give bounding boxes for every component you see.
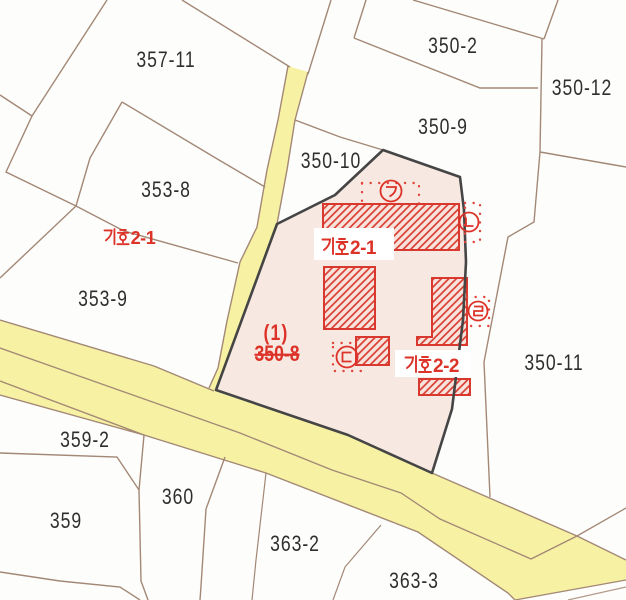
svg-text:357-11: 357-11 xyxy=(136,48,195,72)
svg-text:360: 360 xyxy=(162,485,194,509)
svg-text:359: 359 xyxy=(50,509,82,533)
svg-text:350-12: 350-12 xyxy=(552,76,613,100)
svg-text:353-9: 353-9 xyxy=(78,287,128,311)
svg-text:359-2: 359-2 xyxy=(60,428,110,452)
svg-text:350-10: 350-10 xyxy=(301,149,362,173)
svg-text:2-1: 2-1 xyxy=(350,238,377,259)
svg-text:350-11: 350-11 xyxy=(524,351,583,375)
svg-text:2-1: 2-1 xyxy=(131,228,156,248)
svg-text:350-2: 350-2 xyxy=(428,34,478,58)
svg-text:350-9: 350-9 xyxy=(418,115,468,139)
svg-text:363-2: 363-2 xyxy=(270,532,320,556)
svg-text:2-2: 2-2 xyxy=(433,356,459,377)
svg-text:350-8: 350-8 xyxy=(255,342,300,366)
svg-text:353-8: 353-8 xyxy=(141,178,191,202)
svg-text:363-3: 363-3 xyxy=(389,569,439,593)
